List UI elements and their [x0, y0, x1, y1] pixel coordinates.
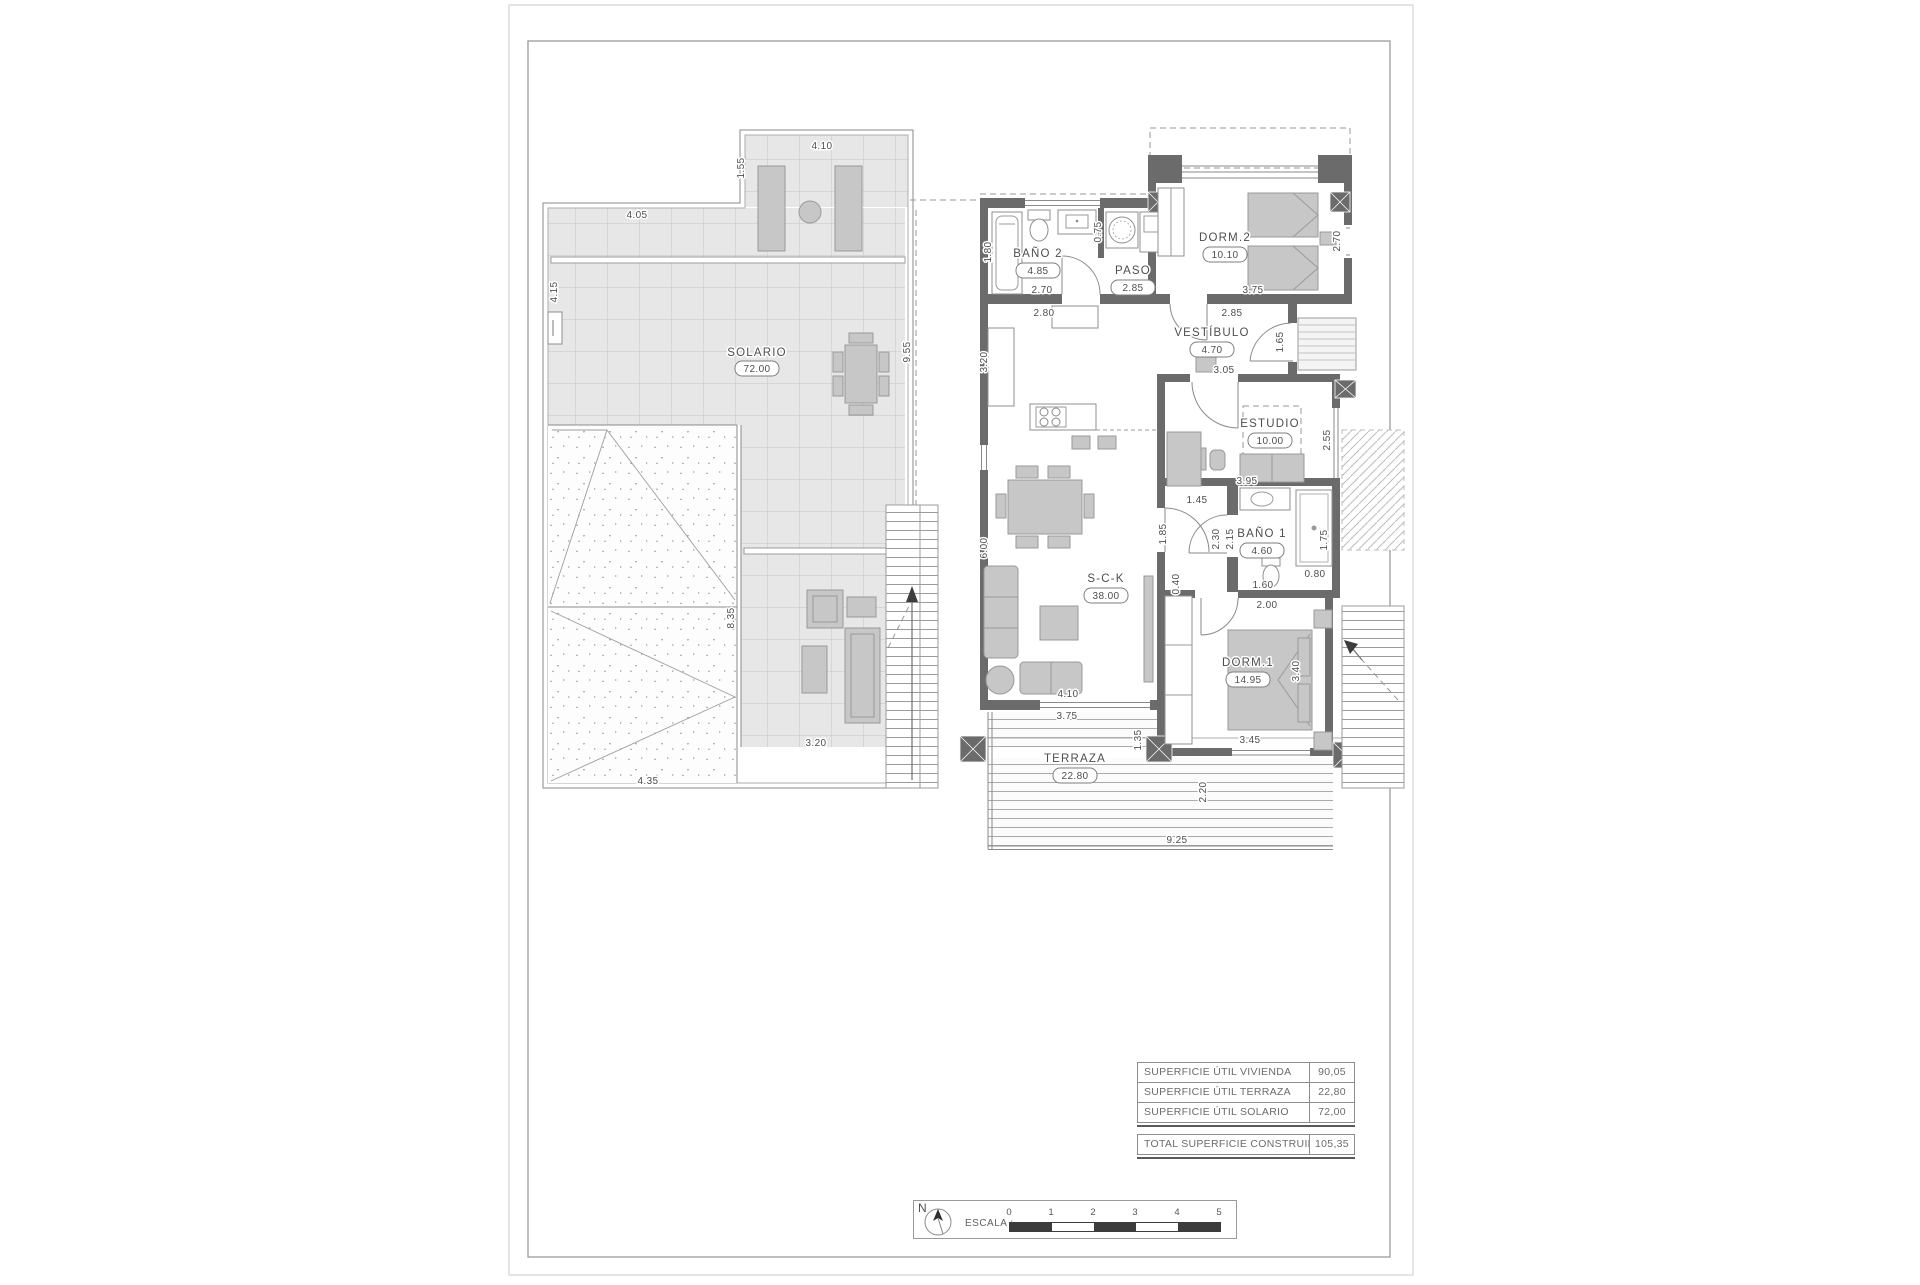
svg-text:0.40: 0.40: [1171, 573, 1182, 594]
table-row: SUPERFICIE ÚTIL SOLARIO 72,00: [1137, 1103, 1355, 1123]
table-row: SUPERFICIE ÚTIL VIVIENDA 90,05: [1137, 1062, 1355, 1083]
row-value: 72,00: [1309, 1103, 1354, 1122]
dim: 9.55: [902, 341, 913, 362]
svg-text:3.40: 3.40: [1291, 660, 1302, 681]
scale-segment: [1010, 1223, 1052, 1231]
room-label-paso: PASO: [1115, 265, 1151, 277]
area-summary-table: SUPERFICIE ÚTIL VIVIENDA 90,05 SUPERFICI…: [1137, 1062, 1355, 1159]
neighbor-unit-hatch: [1342, 430, 1404, 550]
total-value: 105,35: [1309, 1135, 1354, 1154]
svg-text:0.75: 0.75: [1093, 221, 1104, 242]
svg-text:9.25: 9.25: [1166, 835, 1187, 846]
svg-text:1.60: 1.60: [1252, 580, 1273, 591]
svg-text:3.45: 3.45: [1239, 735, 1260, 746]
entrance-porch: [1298, 318, 1356, 370]
solarium-plan: SOLARIO 72.00 4.10 1.55 4.05 4.15 9.55 8…: [543, 130, 978, 788]
svg-text:3.05: 3.05: [1213, 365, 1234, 376]
hall-wardrobe: [1165, 596, 1192, 744]
scale-tick: 3: [1125, 1207, 1145, 1218]
dim: 3.20: [805, 738, 826, 749]
row-label: SUPERFICIE ÚTIL VIVIENDA: [1138, 1063, 1309, 1082]
svg-text:14.95: 14.95: [1234, 675, 1261, 686]
svg-text:4.10: 4.10: [1057, 689, 1078, 700]
dim: 4.10: [811, 141, 832, 152]
svg-text:2.70: 2.70: [1332, 230, 1343, 251]
exterior-stairs: [1342, 430, 1404, 788]
dim: 4.15: [549, 281, 560, 302]
svg-text:4.60: 4.60: [1251, 546, 1272, 557]
scale-tick: 1: [1041, 1207, 1061, 1218]
svg-text:3.75: 3.75: [1242, 285, 1263, 296]
room-label-vestibulo: VESTÍBULO: [1174, 326, 1249, 339]
dim: 1.55: [736, 157, 747, 178]
dim: 4.05: [626, 210, 647, 221]
svg-text:10.10: 10.10: [1211, 250, 1238, 261]
scale-segment: [1136, 1223, 1178, 1231]
scale-tick: 0: [999, 1207, 1019, 1218]
svg-text:3.75: 3.75: [1056, 711, 1077, 722]
scale-tick: 5: [1209, 1207, 1229, 1218]
laundry-fixtures: [1106, 212, 1164, 252]
svg-text:1.85: 1.85: [1158, 523, 1169, 544]
scale-segments: [1009, 1222, 1221, 1232]
row-label: SUPERFICIE ÚTIL TERRAZA: [1138, 1083, 1309, 1102]
compass-icon: [916, 1201, 962, 1238]
svg-text:4.70: 4.70: [1201, 345, 1222, 356]
room-label-terraza: TERRAZA: [1044, 753, 1106, 765]
dim: 4.35: [637, 776, 658, 787]
svg-text:1.65: 1.65: [1275, 331, 1286, 352]
room-label-sck: S-C-K: [1087, 573, 1124, 585]
svg-text:2.00: 2.00: [1256, 600, 1277, 611]
svg-text:2.15: 2.15: [1225, 528, 1236, 549]
svg-text:6.00: 6.00: [979, 537, 990, 558]
scale-bar-box: N ESCALA : 0 1 2 3 4 5: [913, 1200, 1237, 1239]
svg-text:3.20: 3.20: [979, 351, 990, 372]
svg-text:22.80: 22.80: [1061, 771, 1088, 782]
row-value: 22,80: [1309, 1083, 1354, 1102]
room-label-dorm2: DORM.2: [1199, 232, 1251, 244]
table-total-row: TOTAL SUPERFICIE CONSTRUIDA 105,35: [1137, 1134, 1355, 1159]
room-label-dorm1: DORM.1: [1222, 657, 1274, 669]
scale-segment: [1178, 1223, 1220, 1231]
solarium-area: 72.00: [743, 364, 770, 375]
svg-text:2.20: 2.20: [1198, 781, 1209, 802]
scale-tick: 4: [1167, 1207, 1187, 1218]
floorplan-sheet: SOLARIO 72.00 4.10 1.55 4.05 4.15 9.55 8…: [0, 0, 1920, 1280]
svg-text:2.30: 2.30: [1211, 528, 1222, 549]
total-label: TOTAL SUPERFICIE CONSTRUIDA: [1138, 1135, 1309, 1154]
scale-segment: [1052, 1223, 1094, 1231]
svg-text:2.70: 2.70: [1031, 285, 1052, 296]
svg-text:10.00: 10.00: [1256, 436, 1283, 447]
svg-text:2.85: 2.85: [1221, 308, 1242, 319]
dim: 8.35: [726, 607, 737, 628]
table-row: SUPERFICIE ÚTIL TERRAZA 22,80: [1137, 1083, 1355, 1103]
room-label-estudio: ESTUDIO: [1240, 418, 1300, 430]
scale-segment: [1094, 1223, 1136, 1231]
solarium-label: SOLARIO: [727, 347, 787, 359]
row-label: SUPERFICIE ÚTIL SOLARIO: [1138, 1103, 1309, 1122]
svg-text:38.00: 38.00: [1092, 591, 1119, 602]
svg-text:2.55: 2.55: [1322, 429, 1333, 450]
svg-text:2.85: 2.85: [1122, 283, 1143, 294]
scale-tick: 2: [1083, 1207, 1103, 1218]
solarium-stairs: [886, 505, 938, 788]
room-label-bano2: BAÑO 2: [1013, 247, 1062, 260]
scale-label: ESCALA :: [965, 1218, 1013, 1229]
svg-text:1.75: 1.75: [1319, 529, 1330, 550]
svg-text:1.35: 1.35: [1133, 729, 1144, 750]
svg-text:3.95: 3.95: [1236, 476, 1257, 487]
room-label-bano1: BAÑO 1: [1237, 527, 1286, 540]
svg-text:4.85: 4.85: [1027, 266, 1048, 277]
svg-text:2.80: 2.80: [1033, 308, 1054, 319]
svg-text:1.45: 1.45: [1186, 495, 1207, 506]
roof-hatch-upper: [548, 425, 737, 607]
row-value: 90,05: [1309, 1063, 1354, 1082]
divider: [1137, 1125, 1355, 1127]
roof-hatch-lower: [548, 607, 737, 783]
svg-text:0.80: 0.80: [1304, 569, 1325, 580]
svg-text:1.80: 1.80: [983, 241, 994, 262]
